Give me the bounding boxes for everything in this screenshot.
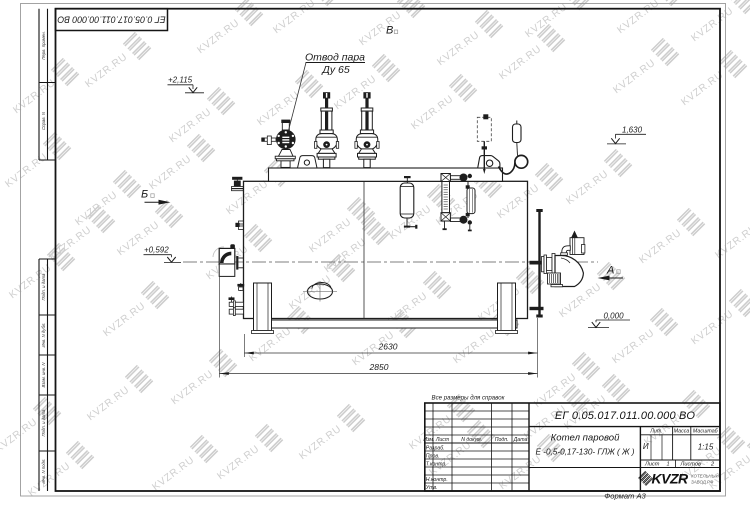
svg-text:Все размеры для справок: Все размеры для справок [432, 394, 506, 401]
svg-text:Ду 65: Ду 65 [321, 64, 350, 76]
svg-text:Пров.: Пров. [426, 453, 440, 459]
svg-text:Масштаб: Масштаб [693, 428, 719, 434]
svg-text:ЕГ 0.05.017.011.00.000 ВО: ЕГ 0.05.017.011.00.000 ВО [57, 15, 165, 25]
svg-text:Подп.: Подп. [495, 437, 509, 443]
svg-text:ЕГ 0.05.017.011.00.000 ВО: ЕГ 0.05.017.011.00.000 ВО [555, 410, 695, 422]
svg-text:Котел паровой: Котел паровой [551, 433, 620, 444]
svg-text:Подп. и дата: Подп. и дата [41, 273, 46, 301]
svg-text:1: 1 [667, 462, 670, 468]
svg-text:Утв.: Утв. [426, 485, 438, 491]
svg-text:Масса: Масса [674, 428, 690, 434]
svg-text:Взам. инв. N: Взам. инв. N [41, 362, 46, 388]
svg-text:N докум.: N докум. [461, 437, 482, 443]
svg-text:Справ. N: Справ. N [41, 111, 46, 130]
svg-text:Лист: Лист [435, 437, 450, 443]
svg-text:1:15: 1:15 [698, 443, 714, 452]
svg-text:Перв. примен.: Перв. примен. [41, 31, 46, 60]
svg-text:+0,592: +0,592 [144, 246, 169, 255]
svg-text:ЗАВОД.РФ: ЗАВОД.РФ [691, 479, 714, 484]
svg-text:2630: 2630 [378, 342, 398, 352]
svg-text:Разраб.: Разраб. [426, 445, 445, 451]
svg-text:Б: Б [141, 189, 148, 201]
svg-text:Формат А3: Формат А3 [604, 491, 646, 500]
svg-text:Инв. N подл.: Инв. N подл. [41, 458, 46, 483]
svg-text:Дата: Дата [513, 437, 528, 443]
svg-text:И: И [643, 442, 649, 451]
svg-text:Е -0,5-0,17-130- ГЛЖ ( Ж ): Е -0,5-0,17-130- ГЛЖ ( Ж ) [536, 448, 635, 457]
svg-text:2850: 2850 [369, 362, 389, 372]
svg-text:В: В [386, 25, 393, 37]
svg-text:1,630: 1,630 [622, 125, 643, 134]
svg-text:Инв. N дубл.: Инв. N дубл. [41, 323, 46, 348]
svg-text:Лит.: Лит. [649, 428, 662, 434]
svg-text:А: А [606, 265, 614, 277]
svg-text:КОТЕЛЬНЫЙ: КОТЕЛЬНЫЙ [691, 473, 719, 478]
svg-text:Лист: Лист [644, 462, 660, 468]
svg-text:KVZR: KVZR [652, 470, 690, 486]
svg-text:Т.контр.: Т.контр. [426, 461, 447, 467]
svg-text:Отвод пара: Отвод пара [305, 52, 365, 64]
svg-text:+2,115: +2,115 [168, 76, 193, 85]
svg-text:Изм.: Изм. [423, 437, 434, 443]
svg-text:Н.контр.: Н.контр. [426, 477, 448, 483]
svg-text:0,000: 0,000 [604, 311, 625, 320]
svg-text:Листов: Листов [680, 462, 701, 468]
svg-text:Подп. и дата: Подп. и дата [41, 409, 46, 437]
